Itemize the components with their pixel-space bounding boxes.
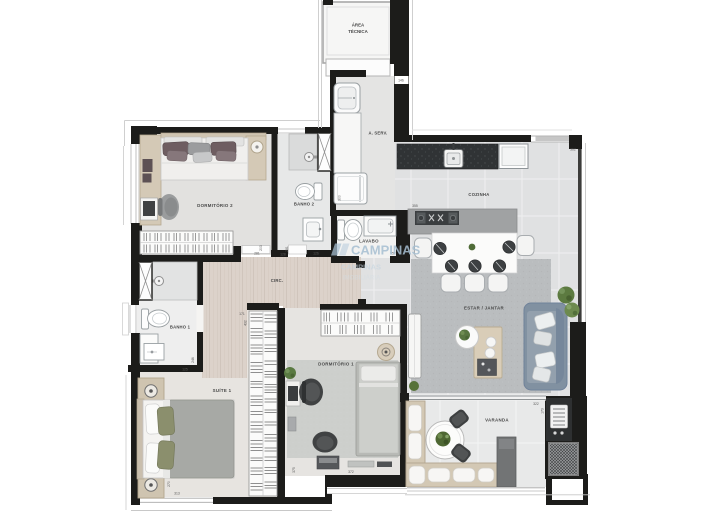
svg-text:372: 372 [348, 470, 354, 474]
svg-text:DORMITÓRIO 2: DORMITÓRIO 2 [197, 203, 233, 208]
svg-text:203: 203 [259, 245, 263, 251]
svg-text:375: 375 [292, 467, 296, 473]
svg-text:281: 281 [285, 246, 289, 252]
svg-text:322: 322 [533, 402, 539, 406]
svg-text:126: 126 [313, 252, 319, 256]
svg-text:DORMITÓRIO 1: DORMITÓRIO 1 [318, 362, 354, 367]
svg-text:CIRC.: CIRC. [271, 278, 283, 283]
svg-text:270: 270 [167, 481, 171, 487]
svg-text:128: 128 [280, 253, 286, 257]
svg-text:355: 355 [412, 204, 418, 208]
svg-text:SUÍTE 1: SUÍTE 1 [213, 388, 232, 393]
svg-text:313: 313 [174, 492, 180, 496]
svg-text:125: 125 [182, 368, 188, 372]
svg-text:A. SERV.: A. SERV. [368, 131, 387, 136]
svg-text:362: 362 [570, 148, 576, 152]
svg-text:BANHO 1: BANHO 1 [170, 325, 191, 330]
svg-text:ESTAR / JANTAR: ESTAR / JANTAR [464, 306, 504, 311]
svg-text:CAMPINAS: CAMPINAS [351, 243, 421, 258]
svg-text:COZINHA: COZINHA [468, 192, 489, 197]
svg-text:432: 432 [244, 320, 248, 326]
svg-text:BANHO 2: BANHO 2 [294, 202, 315, 207]
svg-text:CAMPINAS: CAMPINAS [341, 263, 381, 272]
svg-text:281: 281 [254, 252, 260, 256]
svg-text:246: 246 [191, 357, 195, 363]
svg-text:146: 146 [398, 79, 404, 83]
svg-text:171: 171 [239, 312, 245, 316]
svg-text:300: 300 [338, 195, 342, 201]
svg-text:ÁREA: ÁREA [352, 23, 365, 28]
svg-text:VARANDA: VARANDA [485, 418, 509, 423]
svg-text:IMOBILIÁRIA: IMOBILIÁRIA [343, 275, 381, 282]
svg-text:TÉCNICA: TÉCNICA [348, 29, 368, 34]
svg-text:173: 173 [541, 408, 545, 414]
